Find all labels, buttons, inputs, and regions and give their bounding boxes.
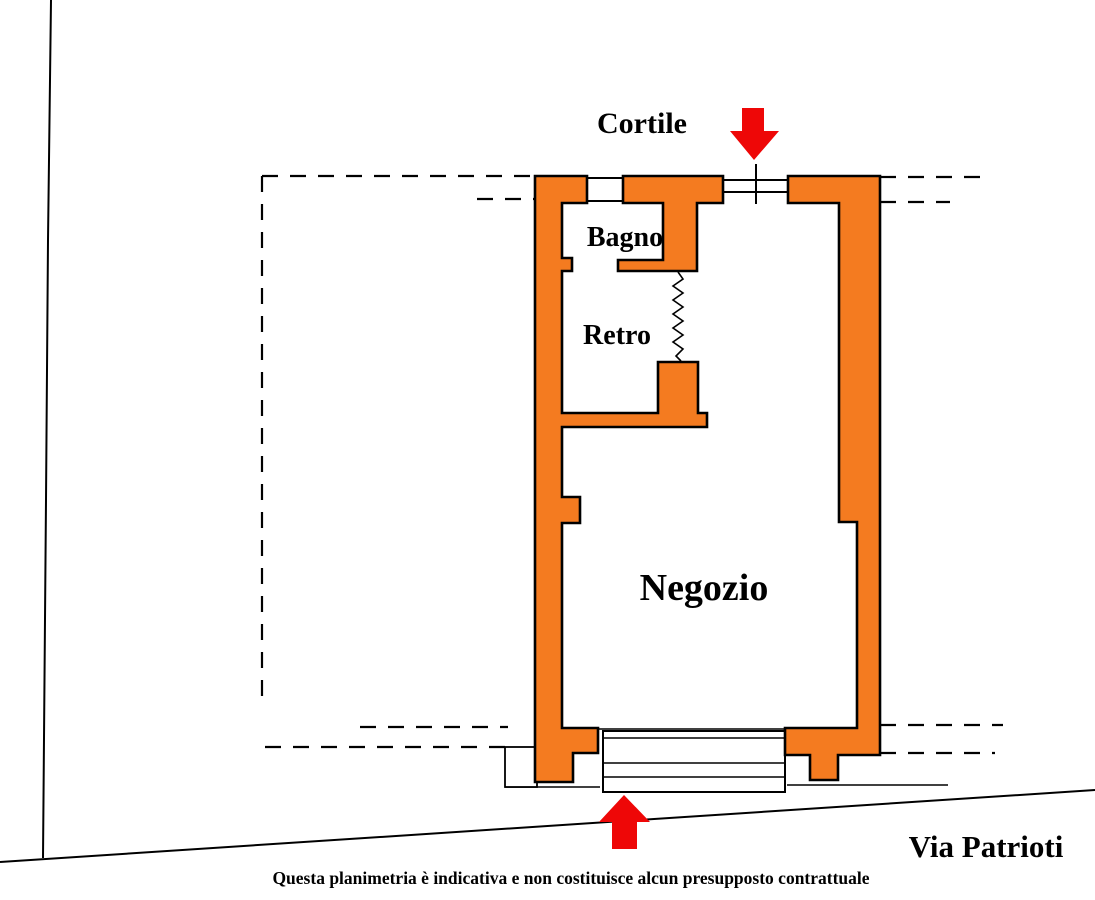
left-boundary-line [43, 0, 51, 858]
storefront-steps [598, 729, 787, 792]
label-negozio: Negozio [640, 567, 769, 609]
floor-plan: Cortile Bagno Retro Negozio Via Patrioti… [0, 0, 1095, 900]
label-retro: Retro [583, 320, 651, 351]
courtyard-door [723, 164, 788, 204]
courtyard-entrance-arrow [730, 108, 779, 160]
disclaimer-text: Questa planimetria è indicativa e non co… [272, 868, 869, 888]
label-cortile: Cortile [597, 107, 687, 140]
entrance-step [505, 747, 537, 787]
bathroom-window [587, 178, 623, 201]
label-bagno: Bagno [587, 222, 663, 253]
zigzag-partition [673, 272, 683, 361]
wall-right-perimeter [785, 176, 880, 780]
label-via-patrioti: Via Patrioti [909, 829, 1064, 864]
street-entrance-arrow [599, 795, 650, 849]
